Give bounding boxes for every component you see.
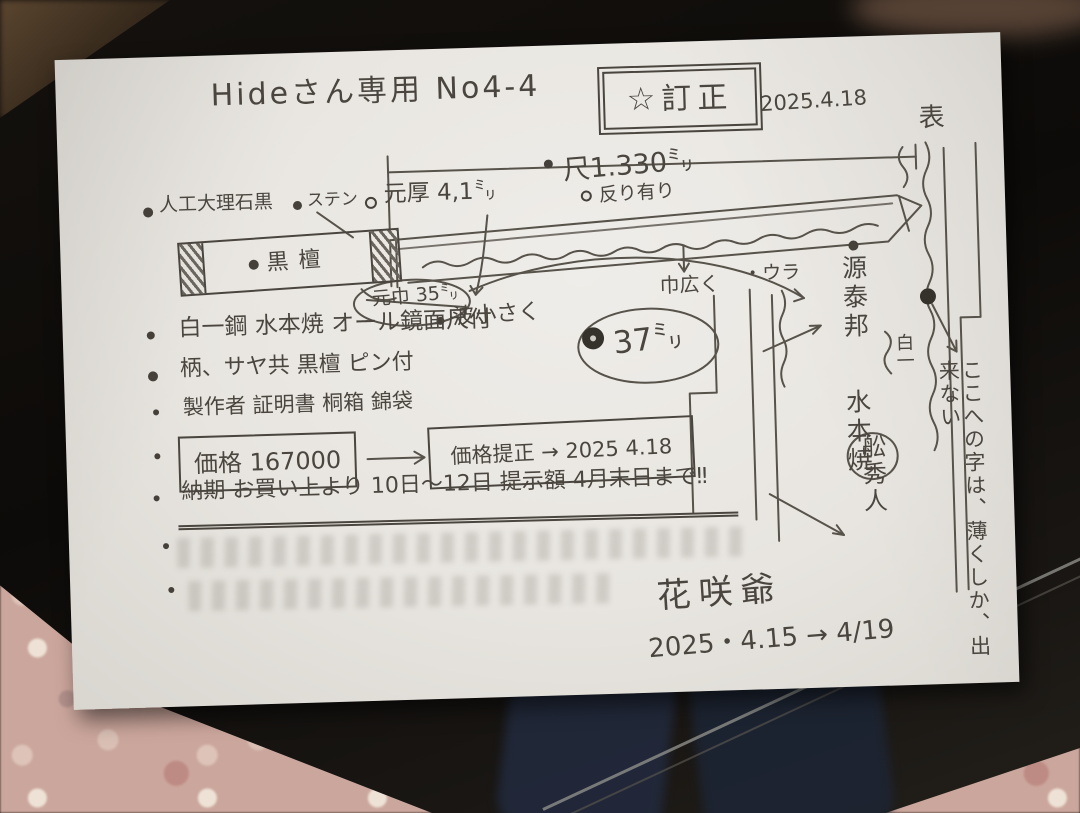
price-revision-arrow xyxy=(367,451,424,465)
photo-root: Hideさん専用 No4-4 ☆ 訂正 2025.4.18 表 尺1.330㍉ … xyxy=(0,0,1080,813)
handwritten-note-paper: Hideさん専用 No4-4 ☆ 訂正 2025.4.18 表 尺1.330㍉ … xyxy=(55,32,1020,710)
front-sketch-dot xyxy=(920,288,936,304)
marble-label: 人工大理石黒 xyxy=(159,192,274,216)
steel-note-brace xyxy=(884,331,892,373)
front-side-label: 表 xyxy=(918,104,945,133)
handle-end-cap xyxy=(179,243,206,295)
steel-note: 白一 xyxy=(893,333,914,388)
back-side-label: ・ウラ xyxy=(743,262,801,285)
stainless-label: ステン xyxy=(307,190,359,210)
bullet-icon xyxy=(248,259,259,270)
base-thickness-value: 元厚 4,1㍉ xyxy=(383,179,497,208)
price-revision-value: 価格提正 → 2025 4.18 xyxy=(450,436,673,470)
ura-wavy-line xyxy=(779,291,788,387)
base-width-new-value: 37㍉ xyxy=(611,319,685,361)
signature-name: 花咲爺 xyxy=(656,571,784,616)
hamon-wave-line xyxy=(422,224,879,268)
handle-material-label: 黒檀 xyxy=(266,247,332,275)
star-icon: ☆ xyxy=(626,82,656,118)
mei-pointer-arrow xyxy=(763,326,822,352)
smith-pointer-arrow xyxy=(770,492,844,537)
correction-stamp-box: ☆ 訂正 xyxy=(602,67,758,130)
smith-name: 舩秀人 xyxy=(858,434,888,565)
price-value: 価格 167000 xyxy=(194,447,342,478)
margin-note-arrow xyxy=(932,304,956,353)
handle-bolster-cap xyxy=(369,230,400,282)
correction-stamp-label: 訂正 xyxy=(661,81,734,116)
width-wide-note: 巾広く xyxy=(659,273,720,297)
mei-inscription: 源泰邦 xyxy=(839,254,870,385)
wave-note-arrow xyxy=(468,215,489,295)
margin-note: ここへの字は、薄くしか、出来ない xyxy=(936,359,991,670)
